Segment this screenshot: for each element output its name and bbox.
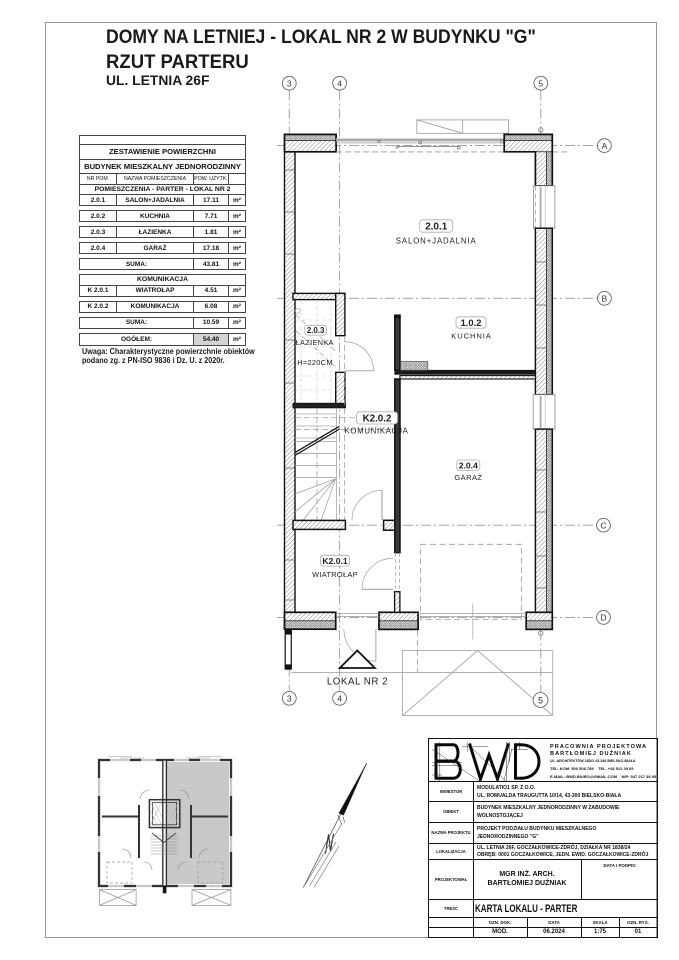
svg-text:1.0.2: 1.0.2 (461, 317, 482, 328)
svg-text:LOKAL NR 2: LOKAL NR 2 (327, 677, 388, 688)
svg-text:SALON+JADALNIA: SALON+JADALNIA (396, 236, 477, 245)
svg-text:ŁAZIENKA: ŁAZIENKA (296, 338, 334, 347)
svg-text:4: 4 (337, 694, 342, 704)
svg-text:2.0.1: 2.0.1 (425, 222, 448, 233)
svg-text:KOMUNIKACJA: KOMUNIKACJA (344, 426, 408, 435)
svg-text:3: 3 (287, 694, 292, 704)
svg-text:A: A (602, 141, 608, 151)
svg-text:5: 5 (538, 78, 543, 88)
svg-text:H=220CM: H=220CM (297, 358, 333, 367)
svg-text:2.0.4: 2.0.4 (459, 460, 478, 470)
svg-text:K2.0.1: K2.0.1 (322, 556, 348, 566)
svg-text:3: 3 (287, 78, 292, 88)
svg-text:D: D (600, 613, 606, 623)
svg-text:WIATROŁAP: WIATROŁAP (312, 570, 358, 579)
svg-text:2.0.3: 2.0.3 (307, 326, 325, 335)
svg-text:5: 5 (538, 695, 543, 705)
svg-text:4: 4 (337, 78, 342, 88)
svg-text:K2.0.2: K2.0.2 (363, 414, 392, 425)
svg-text:GARAŻ: GARAŻ (454, 473, 482, 482)
svg-text:KUCHNIA: KUCHNIA (451, 332, 492, 341)
svg-text:B: B (602, 294, 608, 304)
svg-text:C: C (600, 520, 606, 530)
